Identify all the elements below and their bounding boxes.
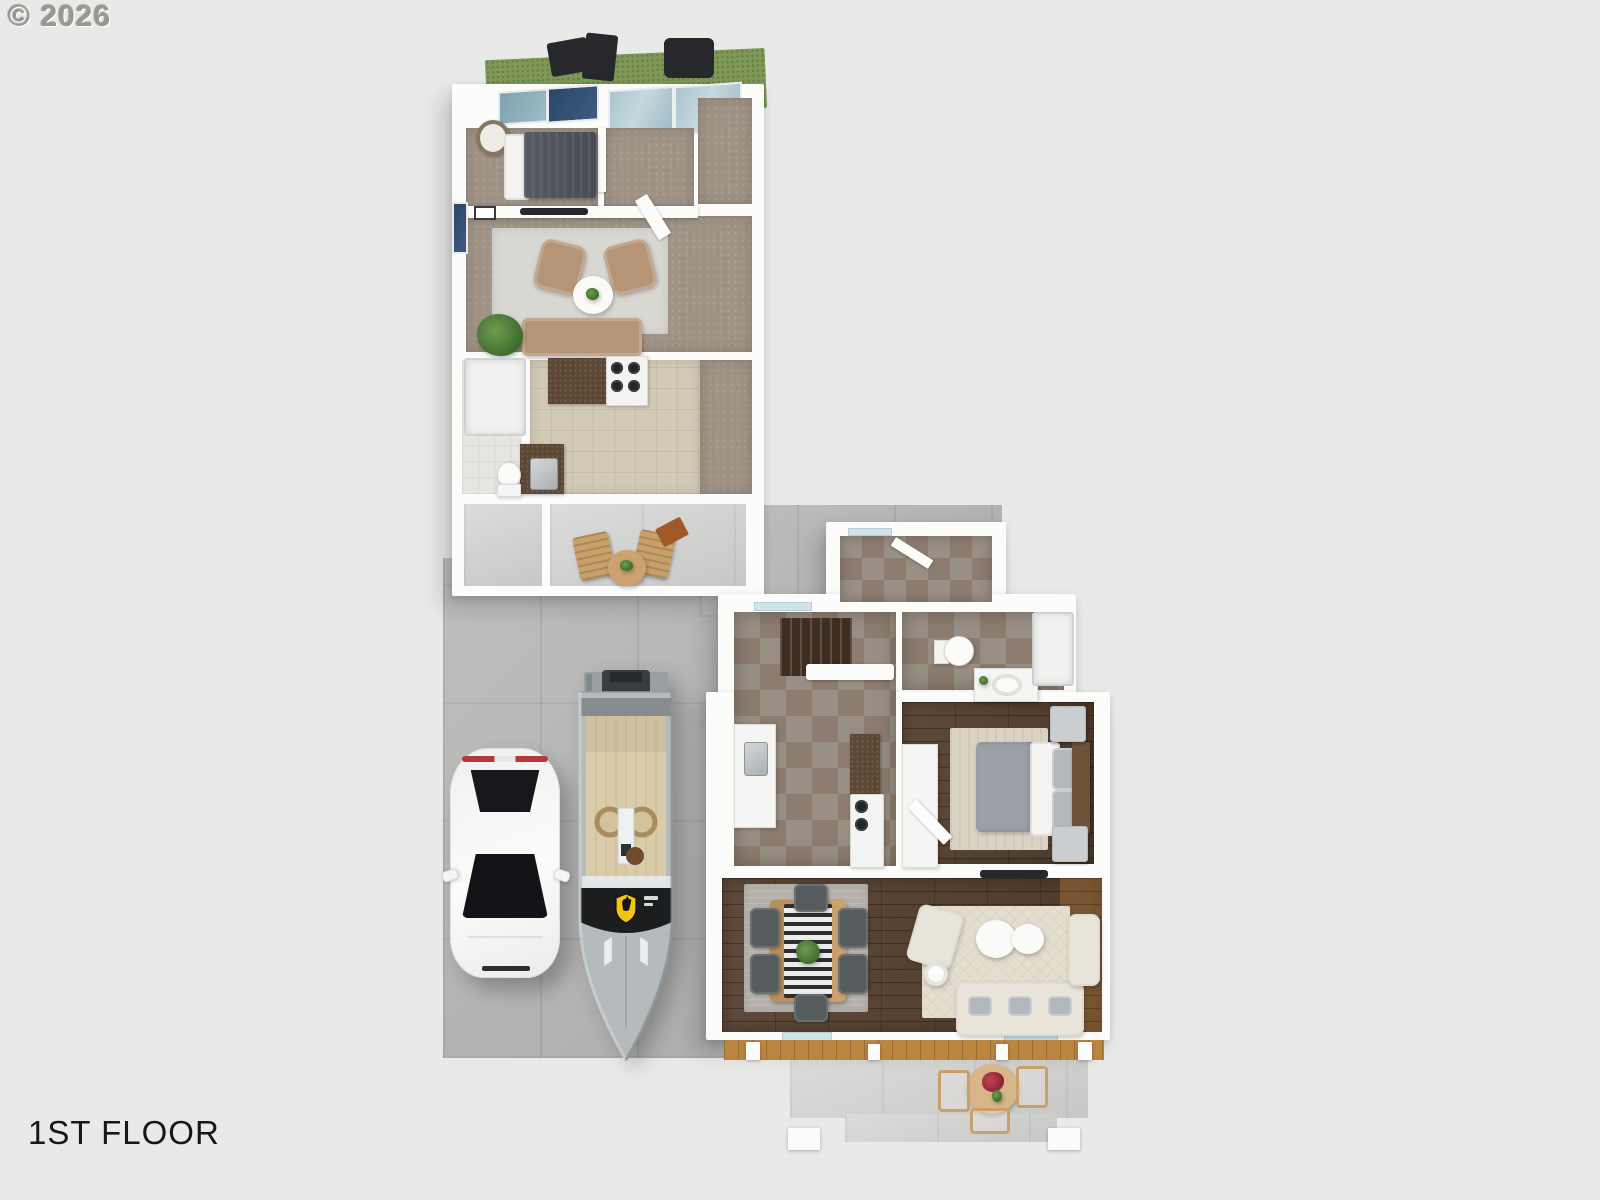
porch-post-3 [996,1044,1008,1060]
boat [568,670,684,1066]
adu-storage-floor [464,504,542,586]
adu-bed [524,132,596,198]
patio-post-left [788,1128,820,1150]
adu-art-frame [474,206,496,220]
mudroom-window [848,528,892,536]
adu-bedroom-divider [598,128,606,192]
dining-chair-1 [750,908,780,948]
adu-kitchen-counter [548,358,610,404]
dining-centerpiece [796,940,820,964]
adu-hallway-floor [604,128,694,208]
toilet-bowl [944,636,974,666]
floorplan-canvas: © 2026 1ST FLOOR [0,0,1600,1200]
main-burner-1 [855,800,868,813]
nightstand-2 [1052,826,1088,862]
adu-burner-3 [611,380,623,392]
kitchen-counter [734,724,776,828]
main-shower [1032,612,1074,686]
nightstand-1 [1050,706,1086,742]
adu-burner-4 [628,380,640,392]
porch-post-2 [868,1044,880,1060]
hall-window [754,602,812,611]
adu-sofa [522,318,642,356]
boat-registration-1 [644,896,658,900]
adu-burner-1 [611,362,623,374]
front-patio-step [845,1114,1057,1142]
side-table [924,962,948,986]
dining-chair-4 [794,994,828,1022]
living-chaise [1068,914,1100,986]
outdoor-chair-2 [1016,1066,1048,1108]
adu-floor-plant [477,314,523,356]
boat-table [626,847,644,865]
mudroom-floor [840,536,992,602]
roof-chair-2 [582,32,619,81]
car-taillight [462,756,548,762]
bed-headboard [1072,742,1090,834]
boat-sunpad [586,716,666,752]
boat-registration-2 [644,903,653,906]
stair-rail [806,664,894,680]
porch-post-4 [1078,1042,1092,1060]
adu-burner-2 [628,362,640,374]
living-tv [980,870,1048,878]
car-windshield [462,854,548,918]
boat-vent-right [640,937,648,966]
bed-duvet [976,742,1032,832]
sofa-pillow-2 [1008,996,1032,1016]
dining-chair-3 [794,884,828,912]
dining-chair-5 [838,908,868,948]
boat-engine-cap [610,672,642,682]
vanity-plant [979,676,988,685]
kitchen-counter-dark [850,734,880,796]
coffee-table-1 [976,920,1016,958]
adu-side-window [452,202,468,254]
adu-shower [464,358,526,436]
vanity-sink [992,674,1022,696]
adu-toilet-tank [497,484,521,497]
adu-tv [520,208,588,215]
copyright-watermark: © 2026 [8,0,111,34]
dining-chair-6 [838,954,868,994]
adu-sink [530,458,558,490]
main-burner-2 [855,818,868,831]
adu-skylight-1 [498,88,548,125]
coffee-table-2 [1012,924,1044,954]
kitchen-sink [744,742,768,776]
adu-stair-hall-floor [700,360,752,494]
roof-ac-unit [664,38,714,78]
sofa-pillow-1 [968,996,992,1016]
car-grille [482,966,530,971]
boat-graphic [568,670,684,1066]
dining-chair-2 [750,954,780,994]
car [446,744,566,984]
car-hood-line [468,936,542,938]
porch-post-1 [746,1042,760,1060]
outdoor-chair-3 [970,1108,1010,1134]
adu-closet-floor [698,98,752,204]
floor-label: 1ST FLOOR [28,1114,220,1152]
adu-table-plant [586,288,599,300]
front-porch [724,1040,1104,1060]
boat-vent-left [604,937,612,966]
sofa-pillow-3 [1048,996,1072,1016]
boat-windshield [582,876,672,888]
patio-post-right [1048,1128,1080,1150]
outdoor-leaves [992,1090,1002,1102]
boat-transom [580,698,672,716]
outdoor-chair-1 [938,1070,970,1112]
adu-patio-table-plant [620,560,633,571]
adu-skylight-2 [547,84,599,124]
